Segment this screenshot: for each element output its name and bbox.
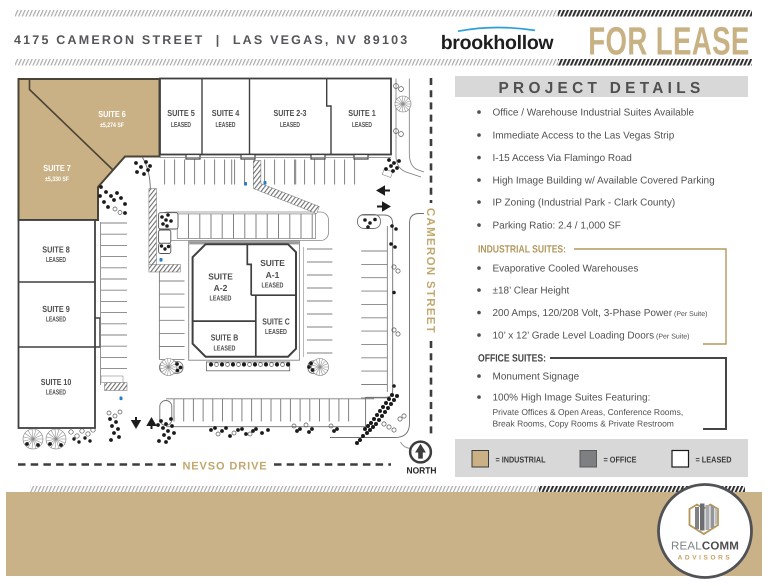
- svg-text:brookhollow: brookhollow: [441, 32, 555, 54]
- svg-text:Office / Warehouse Industrial: Office / Warehouse Industrial Suites Ava…: [493, 108, 695, 119]
- svg-text:4175 CAMERON STREET | LAS VE: 4175 CAMERON STREET | LAS VEGAS, NV 8910…: [14, 33, 409, 47]
- svg-text:SUITE 7: SUITE 7: [43, 163, 71, 173]
- svg-text:I-15 Access Via Flamingo Road: I-15 Access Via Flamingo Road: [493, 153, 632, 164]
- svg-text:Private Offices & Open Areas,: Private Offices & Open Areas, Conference…: [493, 407, 684, 417]
- svg-text:Parking Ratio: 2.4 / 1,000 SF: Parking Ratio: 2.4 / 1,000 SF: [493, 221, 621, 232]
- svg-text:LEASED: LEASED: [46, 388, 66, 397]
- svg-text:LEASED: LEASED: [352, 120, 372, 129]
- svg-text:LEASED: LEASED: [210, 294, 232, 303]
- svg-text:Break Rooms, Copy Rooms & Priv: Break Rooms, Copy Rooms & Private Restro…: [493, 419, 674, 429]
- svg-text:SUITE B: SUITE B: [211, 333, 239, 343]
- svg-text:NEVSO DRIVE: NEVSO DRIVE: [182, 461, 267, 473]
- svg-text:SUITE 1: SUITE 1: [348, 108, 376, 118]
- svg-text:OFFICE SUITES:: OFFICE SUITES:: [478, 353, 546, 365]
- svg-text:= LEASED: = LEASED: [696, 455, 732, 465]
- svg-text:PROJECT DETAILS: PROJECT DETAILS: [499, 80, 705, 97]
- svg-text:SUITE: SUITE: [208, 272, 233, 282]
- svg-text:= OFFICE: = OFFICE: [604, 455, 637, 465]
- svg-text:CAMERON STREET: CAMERON STREET: [424, 208, 436, 334]
- svg-text:±5,330 SF: ±5,330 SF: [45, 176, 69, 183]
- svg-text:SUITE 5: SUITE 5: [167, 108, 195, 118]
- svg-text:INDUSTRIAL SUITES:: INDUSTRIAL SUITES:: [478, 244, 566, 256]
- svg-text:LEASED: LEASED: [265, 327, 287, 336]
- svg-text:IP Zoning (Industrial Park - C: IP Zoning (Industrial Park - Clark Count…: [493, 198, 676, 209]
- svg-text:REALCOMM: REALCOMM: [671, 541, 739, 553]
- svg-text:A-2: A-2: [214, 283, 228, 293]
- svg-text:100% High Image Suites Featuri: 100% High Image Suites Featuring:: [493, 393, 651, 404]
- svg-text:SUITE 9: SUITE 9: [42, 304, 70, 314]
- svg-text:FOR LEASE: FOR LEASE: [588, 20, 749, 64]
- svg-text:NORTH: NORTH: [407, 466, 437, 476]
- svg-text:SUITE: SUITE: [260, 258, 285, 268]
- svg-text:A-1: A-1: [266, 270, 280, 280]
- svg-text:Immediate Access to the Las Ve: Immediate Access to the Las Vegas Strip: [493, 131, 675, 142]
- svg-text:SUITE 8: SUITE 8: [42, 245, 70, 255]
- svg-text:LEASED: LEASED: [46, 255, 66, 264]
- svg-text:LEASED: LEASED: [280, 120, 300, 129]
- svg-text:SUITE 2-3: SUITE 2-3: [274, 108, 307, 118]
- svg-text:LEASED: LEASED: [262, 281, 284, 290]
- svg-text:= INDUSTRIAL: = INDUSTRIAL: [496, 455, 546, 465]
- svg-text:SUITE C: SUITE C: [262, 317, 290, 327]
- svg-text:LEASED: LEASED: [216, 120, 236, 129]
- svg-text:High Image Building w/ Availab: High Image Building w/ Available Covered…: [493, 176, 715, 187]
- svg-text:LEASED: LEASED: [46, 315, 66, 324]
- svg-text:ADVISORS: ADVISORS: [678, 555, 733, 562]
- svg-text:LEASED: LEASED: [171, 120, 191, 129]
- svg-text:Evaporative Cooled Warehouses: Evaporative Cooled Warehouses: [493, 264, 639, 275]
- svg-text:SUITE 6: SUITE 6: [98, 109, 126, 119]
- svg-text:SUITE 10: SUITE 10: [41, 377, 72, 387]
- svg-text:SUITE 4: SUITE 4: [212, 108, 240, 118]
- svg-text:±5,274 SF: ±5,274 SF: [100, 122, 124, 129]
- svg-text:±18’ Clear Height: ±18’ Clear Height: [493, 286, 570, 297]
- svg-text:LEASED: LEASED: [214, 344, 236, 353]
- svg-text:Monument Signage: Monument Signage: [493, 372, 580, 383]
